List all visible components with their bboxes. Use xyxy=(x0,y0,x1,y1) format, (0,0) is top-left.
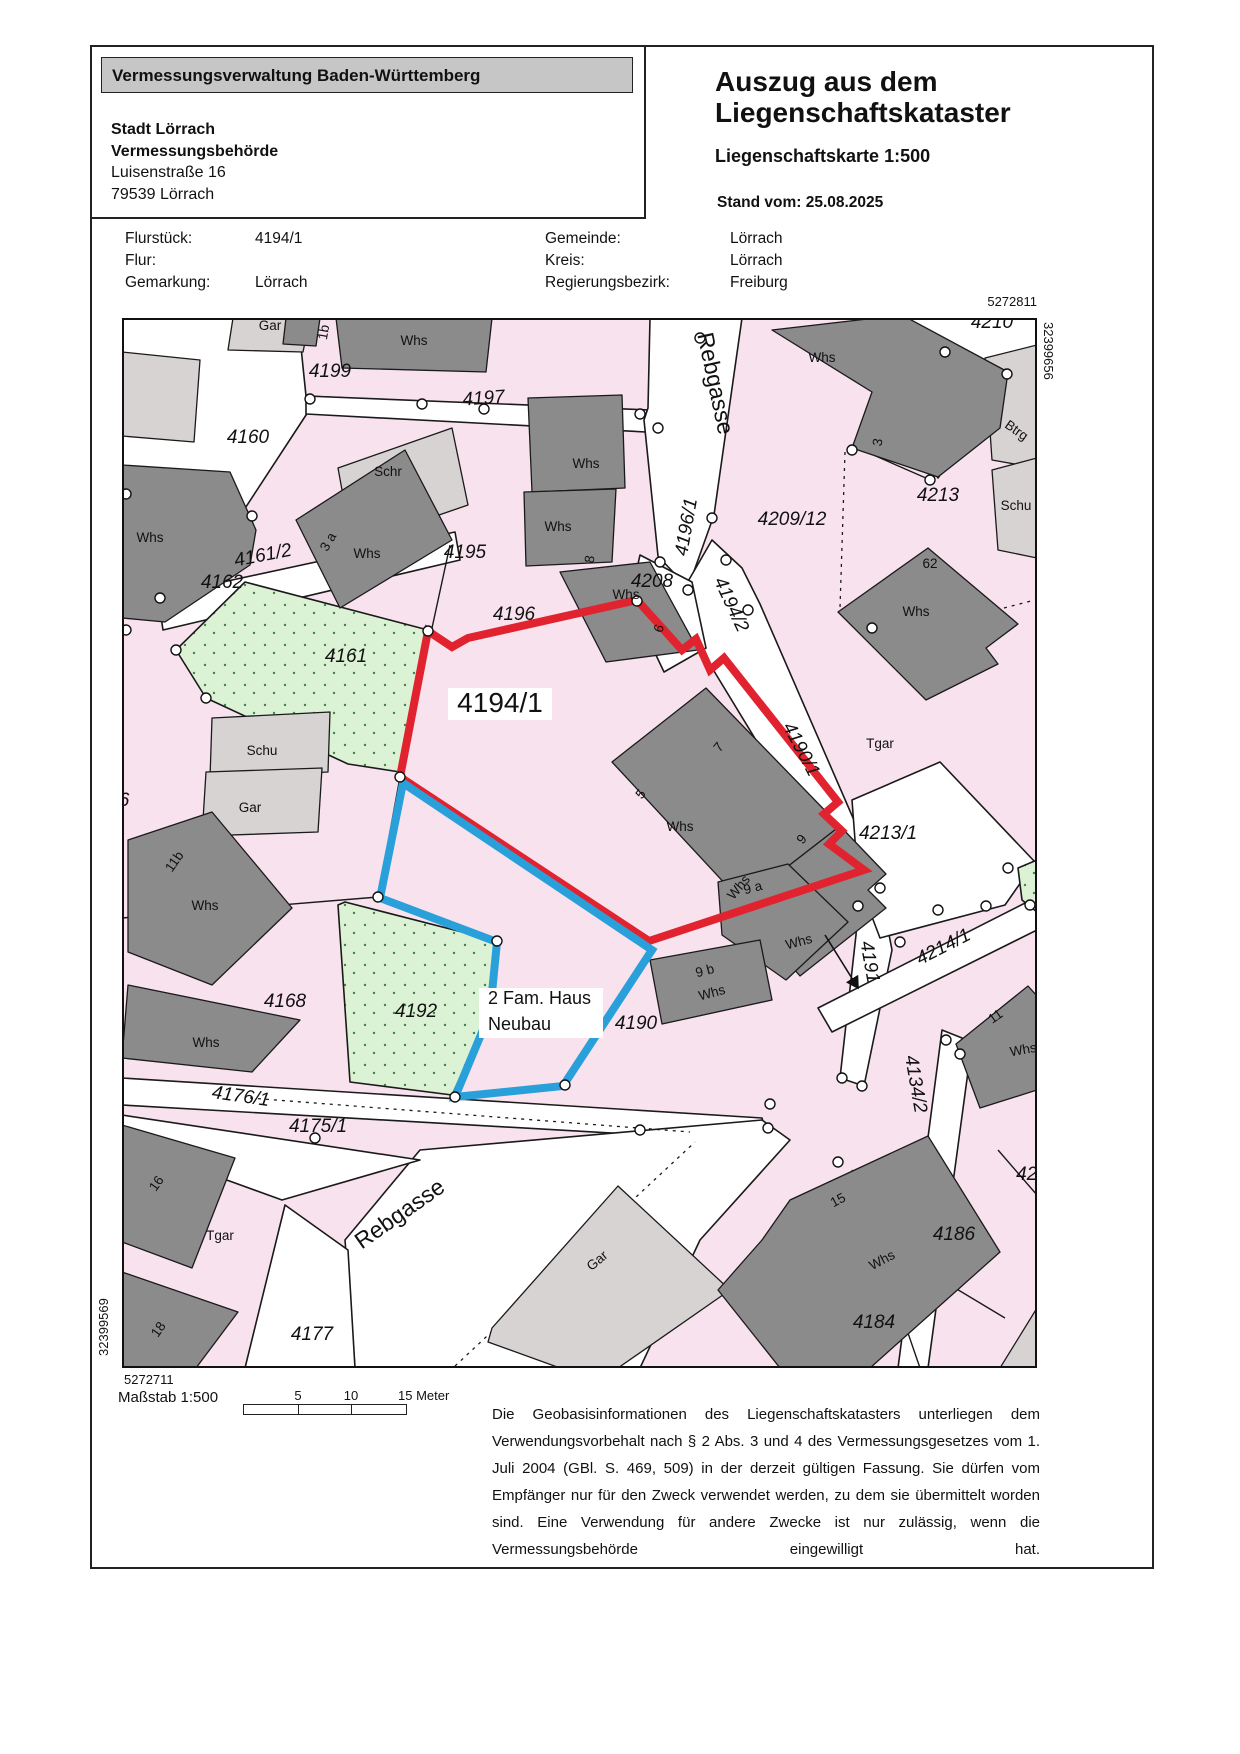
grid-coordinate-right-vertical: 32399656 xyxy=(1041,322,1056,380)
map-label-4194-1: 4194/1 xyxy=(457,687,543,718)
map-label-whs: Whs xyxy=(545,519,572,534)
survey-point xyxy=(395,772,405,782)
map-label-gar: Gar xyxy=(259,318,282,333)
map-label-4213: 4213 xyxy=(917,485,960,506)
survey-point xyxy=(941,1035,951,1045)
survey-point xyxy=(837,1073,847,1083)
map-label-4186: 4186 xyxy=(933,1224,976,1245)
survey-point xyxy=(955,1049,965,1059)
map-label-4184: 4184 xyxy=(853,1312,895,1333)
survey-point xyxy=(721,555,731,565)
survey-point xyxy=(763,1123,773,1133)
map-label-4195: 4195 xyxy=(444,542,487,563)
map-label-whs: Whs xyxy=(613,587,640,602)
office-address: Stadt Lörrach Vermessungsbehörde Luisens… xyxy=(111,119,278,205)
survey-point xyxy=(765,1099,775,1109)
survey-point xyxy=(875,883,885,893)
map-label-whs: Whs xyxy=(137,530,164,545)
info-label: Gemeinde: xyxy=(545,228,730,250)
map-label-whs: Whs xyxy=(192,898,219,913)
survey-point xyxy=(373,892,383,902)
scale-label: Maßstab 1:500 xyxy=(118,1389,218,1406)
map-label-4161: 4161 xyxy=(325,646,367,667)
info-value: Lörrach xyxy=(730,250,783,272)
map-scale-subtitle: Liegenschaftskarte 1:500 xyxy=(715,146,930,167)
survey-point xyxy=(1025,900,1035,910)
map-label-4209-12: 4209/12 xyxy=(758,509,827,530)
cadastral-extract-page: Vermessungsverwaltung Baden-Württemberg … xyxy=(0,0,1240,1754)
map-label-schu: Schu xyxy=(247,743,278,758)
survey-point xyxy=(895,937,905,947)
survey-point xyxy=(847,445,857,455)
scale-bar-tick xyxy=(351,1405,353,1414)
grid-coordinate-left-vertical: 32399569 xyxy=(96,1298,111,1356)
map-label-schu: Schu xyxy=(1001,498,1032,513)
scale-tick-label: 15 Meter xyxy=(398,1388,449,1403)
survey-point xyxy=(635,409,645,419)
map-label-gar: Gar xyxy=(239,800,262,815)
survey-point xyxy=(423,626,433,636)
info-label: Flur: xyxy=(125,250,255,272)
scale-bar xyxy=(243,1404,407,1415)
map-label-whs: Whs xyxy=(903,604,930,619)
title-line-1: Auszug aus dem xyxy=(715,66,937,97)
map-label-62: 62 xyxy=(922,556,937,571)
building-1b xyxy=(283,318,320,346)
survey-point xyxy=(635,1125,645,1135)
info-label: Flurstück: xyxy=(125,228,255,250)
grid-coordinate-bottom-left: 5272711 xyxy=(124,1372,174,1387)
survey-point xyxy=(940,347,950,357)
info-value: 4194/1 xyxy=(255,228,302,250)
building-light xyxy=(122,352,200,442)
survey-point xyxy=(450,1092,460,1102)
survey-point xyxy=(417,399,427,409)
map-label-whs: Whs xyxy=(354,546,381,561)
office-line: 79539 Lörrach xyxy=(111,184,278,206)
survey-point xyxy=(683,585,693,595)
office-line: Vermessungsbehörde xyxy=(111,141,278,163)
survey-point xyxy=(653,423,663,433)
map-label-neubau: Neubau xyxy=(488,1014,551,1034)
survey-point xyxy=(155,593,165,603)
scale-bar-tick xyxy=(298,1405,300,1414)
info-value: Freiburg xyxy=(730,272,788,294)
survey-point xyxy=(560,1080,570,1090)
survey-point xyxy=(925,475,935,485)
office-line: Luisenstraße 16 xyxy=(111,162,278,184)
map-label-1b: 1b xyxy=(315,324,332,341)
survey-point xyxy=(1003,863,1013,873)
grid-coordinate-top-right: 5272811 xyxy=(952,294,1037,309)
map-label-tgar: Tgar xyxy=(866,736,894,751)
map-label-schr: Schr xyxy=(374,464,402,479)
map-label-whs: Whs xyxy=(667,819,694,834)
office-line: Stadt Lörrach xyxy=(111,119,278,141)
as-of-date: Stand vom: 25.08.2025 xyxy=(717,194,883,212)
map-label-4190: 4190 xyxy=(615,1013,658,1034)
document-title: Auszug aus dem Liegenschaftskataster xyxy=(715,66,1011,128)
parcel-info-left: Flurstück:4194/1 Flur: Gemarkung:Lörrach xyxy=(125,228,308,294)
usage-disclaimer: Die Geobasisinformationen des Liegenscha… xyxy=(492,1401,1040,1563)
map-label-4160: 4160 xyxy=(227,427,270,448)
building-whs xyxy=(528,395,625,492)
survey-point xyxy=(707,513,717,523)
info-value: Lörrach xyxy=(730,228,783,250)
map-label-4199: 4199 xyxy=(309,361,352,382)
cadastral-map: 4199419741604161/24162416141954196420842… xyxy=(122,318,1037,1368)
map-label-4177: 4177 xyxy=(291,1324,335,1345)
agency-banner: Vermessungsverwaltung Baden-Württemberg xyxy=(101,57,633,93)
survey-point xyxy=(305,394,315,404)
parcel-info-right: Gemeinde:Lörrach Kreis:Lörrach Regierung… xyxy=(545,228,788,294)
survey-point xyxy=(857,1081,867,1091)
scale-tick-label: 10 xyxy=(344,1388,358,1403)
map-label-whs: Whs xyxy=(193,1035,220,1050)
issuing-office-box: Vermessungsverwaltung Baden-Württemberg … xyxy=(90,45,646,219)
map-label-4210: 4210 xyxy=(971,318,1014,333)
survey-point xyxy=(981,901,991,911)
info-label: Regierungsbezirk: xyxy=(545,272,730,294)
map-label-4162: 4162 xyxy=(201,572,244,593)
info-label: Kreis: xyxy=(545,250,730,272)
map-label-whs: Whs xyxy=(573,456,600,471)
survey-point xyxy=(1002,369,1012,379)
map-label-tgar: Tgar xyxy=(206,1228,234,1243)
map-label-whs: Whs xyxy=(401,333,428,348)
title-line-2: Liegenschaftskataster xyxy=(715,97,1011,128)
map-label-421: 421 xyxy=(1016,1164,1037,1185)
map-label-whs: Whs xyxy=(809,350,836,365)
map-label-4192: 4192 xyxy=(395,1001,438,1022)
map-label-4175-1: 4175/1 xyxy=(289,1116,347,1137)
survey-point xyxy=(853,901,863,911)
map-label-4213-1: 4213/1 xyxy=(859,823,917,844)
survey-point xyxy=(201,693,211,703)
survey-point xyxy=(833,1157,843,1167)
survey-point xyxy=(655,557,665,567)
survey-point xyxy=(247,511,257,521)
survey-point xyxy=(867,623,877,633)
info-label: Gemarkung: xyxy=(125,272,255,294)
survey-point xyxy=(171,645,181,655)
scale-tick-label: 5 xyxy=(294,1388,301,1403)
survey-point xyxy=(933,905,943,915)
survey-point xyxy=(492,936,502,946)
map-label-2-fam-haus: 2 Fam. Haus xyxy=(488,988,591,1008)
map-label-4197: 4197 xyxy=(462,386,507,410)
info-value: Lörrach xyxy=(255,272,308,294)
map-label-4196: 4196 xyxy=(493,604,536,625)
map-label-4168: 4168 xyxy=(264,991,307,1012)
